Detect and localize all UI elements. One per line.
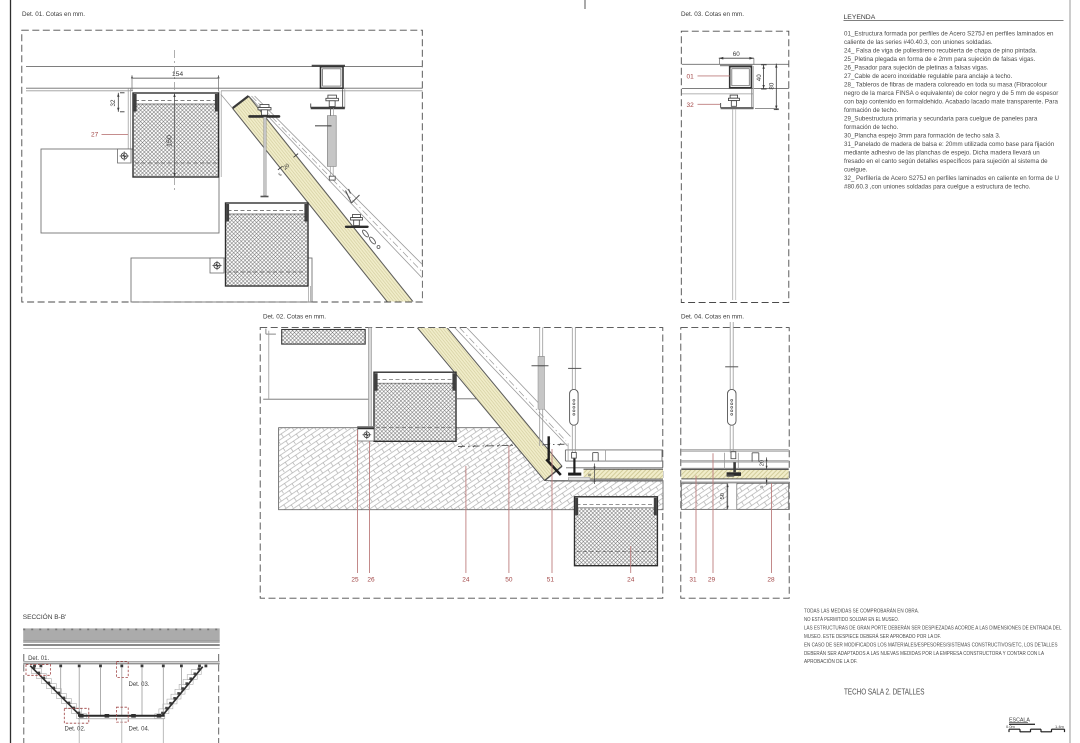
svg-text:24: 24 xyxy=(627,577,635,584)
svg-text:32: 32 xyxy=(687,102,695,109)
svg-text:01: 01 xyxy=(687,73,695,80)
svg-text:28_ Tableros de fibras de made: 28_ Tableros de fibras de madera colorea… xyxy=(844,82,1047,89)
svg-text:24_ Falsa de viga de poliestir: 24_ Falsa de viga de poliestireno recubi… xyxy=(844,48,1037,55)
svg-text:DEBERÁN SER ADAPTADOS A LAS NU: DEBERÁN SER ADAPTADOS A LAS NUEVAS MEDID… xyxy=(804,650,1044,657)
svg-text:#80.60.3 ,con uniones soldadas: #80.60.3 ,con uniones soldadas para cuel… xyxy=(844,184,1031,191)
svg-text:formación de techo.: formación de techo. xyxy=(844,107,899,114)
svg-text:LAS ESTRUCTURAS DE GRAN PORTE: LAS ESTRUCTURAS DE GRAN PORTE DEBERÁN SE… xyxy=(804,624,1062,631)
svg-text:mediante adhesivo de las planc: mediante adhesivo de las planchas de esp… xyxy=(844,150,1040,157)
svg-text:60: 60 xyxy=(733,51,741,58)
svg-text:Det. 03.: Det. 03. xyxy=(129,682,150,688)
svg-text:caliente de las series #40.40.: caliente de las series #40.40.3, con uni… xyxy=(844,39,993,46)
svg-text:26_Pasador para sujeción de pl: 26_Pasador para sujeción de pletinas a f… xyxy=(844,65,989,72)
svg-text:31_Panelado de madera de balsa: 31_Panelado de madera de balsa e: 20mm u… xyxy=(844,141,1055,148)
svg-text:0.0m: 0.0m xyxy=(1006,724,1016,729)
svg-text:SECCIÓN B-B': SECCIÓN B-B' xyxy=(23,612,67,621)
svg-text:APROBACIÓN DE LA DF.: APROBACIÓN DE LA DF. xyxy=(804,658,858,665)
svg-text:40: 40 xyxy=(756,74,763,81)
svg-text:Det. 04.: Det. 04. xyxy=(129,727,150,733)
svg-text:TECHO SALA 2. DETALLES: TECHO SALA 2. DETALLES xyxy=(844,688,925,697)
svg-text:32: 32 xyxy=(110,99,117,106)
svg-text:31: 31 xyxy=(689,577,697,584)
svg-text:fresado en el canto según deta: fresado en el canto según detalles espec… xyxy=(844,158,1048,165)
svg-text:25: 25 xyxy=(351,577,359,584)
svg-text:26: 26 xyxy=(367,577,375,584)
svg-text:cuelgue.: cuelgue. xyxy=(844,167,868,174)
svg-text:154: 154 xyxy=(172,71,184,78)
svg-text:MUSEO. ESTE DESPIECE DEBERÁ SE: MUSEO. ESTE DESPIECE DEBERÁ SER APROBADO… xyxy=(804,633,941,640)
svg-text:negro de la marca FINSA o equi: negro de la marca FINSA o equivalente) d… xyxy=(844,90,1058,97)
svg-text:Det. 02.: Det. 02. xyxy=(65,727,86,733)
svg-text:29_Subestructura primaria y se: 29_Subestructura primaria y secundaria p… xyxy=(844,116,1038,123)
svg-text:01_Estructura formada por perf: 01_Estructura formada por perfiles de Ac… xyxy=(844,31,1054,38)
svg-text:27_Cable de acero inoxidable r: 27_Cable de acero inoxidable regulable p… xyxy=(844,73,1012,80)
svg-text:20: 20 xyxy=(760,460,766,466)
svg-text:150: 150 xyxy=(166,135,173,147)
svg-text:Det. 02. Cotas en mm.: Det. 02. Cotas en mm. xyxy=(263,314,326,321)
svg-text:formación de techo.: formación de techo. xyxy=(844,124,899,131)
svg-text:51: 51 xyxy=(547,577,555,584)
svg-text:8: 8 xyxy=(587,473,592,476)
svg-text:80: 80 xyxy=(769,82,776,89)
svg-text:NO ESTÁ PERMITIDO SOLDAR EN EL: NO ESTÁ PERMITIDO SOLDAR EN EL MUSEO. xyxy=(804,616,899,623)
svg-text:50: 50 xyxy=(505,577,513,584)
svg-text:50: 50 xyxy=(720,493,726,499)
svg-text:29: 29 xyxy=(708,577,716,584)
svg-text:1.4m: 1.4m xyxy=(1055,724,1065,729)
svg-text:Det. 01.: Det. 01. xyxy=(28,656,49,662)
svg-text:24: 24 xyxy=(462,577,470,584)
svg-text:27: 27 xyxy=(91,132,99,139)
svg-text:Det. 03. Cotas en mm.: Det. 03. Cotas en mm. xyxy=(681,11,744,18)
svg-text:28: 28 xyxy=(767,577,775,584)
svg-text:LEYENDA: LEYENDA xyxy=(844,14,876,21)
svg-text:32_ Perfilería de Acero S275J: 32_ Perfilería de Acero S275J en perfile… xyxy=(844,175,1059,182)
svg-text:Det. 01. Cotas en mm.: Det. 01. Cotas en mm. xyxy=(22,11,85,18)
svg-text:25_Pletina plegada en forma de: 25_Pletina plegada en forma de e 2mm par… xyxy=(844,56,1036,63)
svg-text:Det. 04. Cotas en mm.: Det. 04. Cotas en mm. xyxy=(681,314,744,321)
svg-text:TODAS LAS MEDIDAS SE COMPROBAR: TODAS LAS MEDIDAS SE COMPROBARÁN EN OBRA… xyxy=(804,608,919,615)
svg-text:30_Plancha espejo 3mm para for: 30_Plancha espejo 3mm para formación de … xyxy=(844,133,1001,140)
svg-text:con bajo contenido en formalde: con bajo contenido en formaldehido. Acab… xyxy=(844,99,1059,106)
svg-text:EN CASO DE SER MODIFICADOS LOS: EN CASO DE SER MODIFICADOS LOS MATERIALE… xyxy=(804,642,1058,648)
